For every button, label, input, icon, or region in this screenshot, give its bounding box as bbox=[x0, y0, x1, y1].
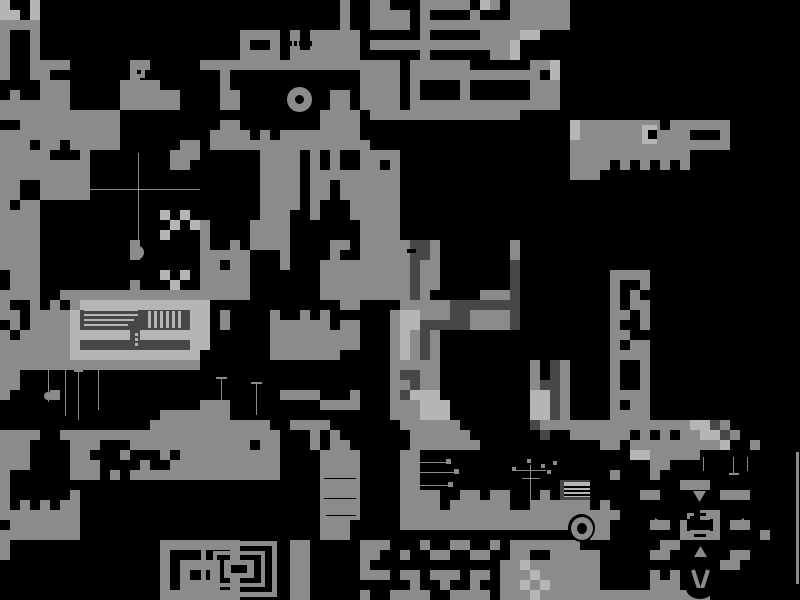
terrain-run bbox=[510, 50, 520, 60]
terrain-run bbox=[610, 300, 620, 310]
terrain-run bbox=[200, 60, 400, 70]
terrain-run bbox=[520, 30, 540, 40]
terrain-run bbox=[130, 440, 250, 450]
t-pole-2 bbox=[256, 382, 257, 415]
terrain-run bbox=[560, 400, 570, 410]
terrain-run bbox=[540, 430, 550, 440]
wall-arm-1 bbox=[420, 462, 448, 463]
terrain-run bbox=[0, 460, 30, 470]
terrain-run bbox=[400, 520, 570, 530]
terrain-run bbox=[350, 200, 400, 210]
terrain-run bbox=[570, 170, 600, 180]
terrain-run bbox=[450, 500, 510, 510]
terrain-run bbox=[610, 370, 620, 380]
terrain-run bbox=[550, 400, 560, 410]
terrain-run bbox=[520, 580, 530, 590]
antenna-node-1 bbox=[512, 467, 516, 471]
terrain-run bbox=[410, 340, 420, 350]
terrain-run bbox=[410, 80, 420, 90]
terrain-run bbox=[40, 90, 70, 100]
terrain-run bbox=[650, 550, 670, 560]
terrain-run bbox=[360, 540, 390, 550]
terrain-run bbox=[610, 350, 650, 360]
terrain-run bbox=[110, 470, 120, 480]
terrain-run bbox=[500, 580, 520, 590]
terrain-run bbox=[630, 340, 650, 350]
terrain-run bbox=[390, 330, 400, 340]
terrain-run bbox=[510, 290, 520, 300]
terrain-run bbox=[360, 230, 400, 240]
terrain-run bbox=[700, 430, 720, 440]
terrain-run bbox=[160, 210, 170, 220]
terrain-run bbox=[470, 10, 480, 20]
terrain-run bbox=[70, 450, 90, 460]
terrain-run bbox=[230, 260, 250, 270]
terrain-run bbox=[290, 50, 360, 60]
terrain-run bbox=[400, 480, 420, 490]
terrain-run bbox=[0, 540, 10, 550]
terrain-run bbox=[170, 160, 190, 170]
terrain-run bbox=[550, 370, 560, 380]
terrain-run bbox=[0, 40, 10, 50]
terrain-run bbox=[230, 240, 240, 250]
terrain-run bbox=[410, 430, 470, 440]
terrain-run bbox=[400, 300, 450, 310]
terrain-run bbox=[190, 340, 210, 350]
terrain-run bbox=[190, 310, 210, 320]
terrain-run bbox=[510, 40, 520, 50]
terrain-run bbox=[420, 30, 430, 40]
terrain-run bbox=[10, 320, 20, 330]
terrain-run bbox=[360, 240, 410, 250]
terrain-run bbox=[530, 400, 550, 410]
terrain-run bbox=[390, 160, 400, 170]
terrain-run bbox=[420, 330, 430, 340]
terrain-run bbox=[260, 190, 300, 200]
terrain-run bbox=[530, 360, 540, 370]
shaft-rung-5 bbox=[330, 562, 352, 563]
terrain-run bbox=[200, 220, 210, 230]
terrain-run bbox=[420, 260, 440, 270]
terrain-run bbox=[570, 160, 610, 170]
terrain-run bbox=[0, 390, 10, 400]
terrain-run bbox=[0, 480, 10, 490]
terrain-run bbox=[610, 320, 620, 330]
t-pole-1 bbox=[221, 377, 222, 415]
terrain-run bbox=[420, 310, 450, 320]
terrain-run bbox=[0, 300, 10, 310]
terrain-run bbox=[420, 350, 430, 360]
terrain-run bbox=[0, 160, 90, 170]
terrain-run bbox=[400, 570, 420, 580]
terrain-run bbox=[260, 210, 290, 220]
terrain-run bbox=[420, 400, 450, 410]
terrain-run bbox=[360, 220, 400, 230]
terrain-run bbox=[390, 400, 420, 410]
terrain-run bbox=[280, 260, 290, 270]
terrain-run bbox=[320, 110, 360, 120]
terrain-run bbox=[490, 0, 500, 10]
terrain-run bbox=[30, 50, 40, 60]
portal-ring bbox=[287, 87, 312, 112]
shaft-rung-3 bbox=[326, 515, 356, 516]
terrain-run bbox=[210, 130, 250, 140]
terrain-run bbox=[530, 90, 560, 100]
terrain-run bbox=[650, 580, 680, 590]
terrain-run bbox=[0, 510, 80, 520]
terrain-run bbox=[0, 310, 20, 320]
terrain-run bbox=[270, 320, 330, 330]
terrain-run bbox=[360, 250, 410, 260]
terrain-run bbox=[610, 380, 620, 390]
terrain-run bbox=[400, 450, 420, 460]
terrain-run bbox=[580, 130, 690, 140]
terrain-run bbox=[370, 10, 410, 20]
terrain-run bbox=[360, 570, 390, 580]
dash-1 bbox=[289, 41, 292, 46]
terrain-run bbox=[610, 390, 650, 400]
terrain-run bbox=[70, 320, 80, 330]
terrain-run bbox=[530, 390, 550, 400]
terrain-run bbox=[130, 280, 140, 290]
terrain-run bbox=[0, 10, 20, 20]
terrain-run bbox=[360, 560, 370, 570]
shaft-rung-6 bbox=[332, 582, 352, 583]
terrain-run bbox=[720, 490, 750, 500]
terrain-run bbox=[290, 570, 310, 580]
antenna-node-2 bbox=[527, 459, 531, 463]
terrain-run bbox=[360, 70, 400, 80]
terrain-run bbox=[270, 350, 340, 360]
terrain-run bbox=[200, 400, 230, 410]
terrain-run bbox=[510, 240, 520, 250]
terrain-run bbox=[760, 530, 770, 540]
terrain-run bbox=[330, 440, 350, 450]
terrain-run bbox=[390, 370, 400, 380]
terrain-run bbox=[170, 280, 180, 290]
terrain-run bbox=[450, 300, 520, 310]
terrain-run bbox=[510, 250, 520, 260]
terrain-run bbox=[730, 430, 740, 440]
terrain-run bbox=[530, 380, 540, 390]
terrain-run bbox=[290, 580, 310, 590]
terrain-run bbox=[420, 540, 430, 550]
terrain-run bbox=[390, 310, 400, 320]
terrain-run bbox=[540, 380, 560, 390]
terrain-run bbox=[610, 310, 630, 320]
terrain-run bbox=[510, 10, 570, 20]
compass-tri-down bbox=[693, 491, 706, 502]
terrain-run bbox=[400, 330, 410, 340]
terrain-run bbox=[310, 180, 330, 190]
terrain-run bbox=[510, 320, 520, 330]
terrain-run bbox=[260, 440, 280, 450]
terrain-run bbox=[0, 60, 10, 70]
terrain-run bbox=[410, 440, 480, 450]
terrain-run bbox=[70, 310, 80, 320]
terrain-run bbox=[250, 220, 290, 230]
terrain-run bbox=[180, 570, 190, 580]
game-region-map bbox=[0, 0, 800, 600]
terrain-run bbox=[510, 550, 530, 560]
terrain-run bbox=[450, 310, 470, 320]
terrain-run bbox=[470, 580, 480, 590]
terrain-run bbox=[420, 340, 430, 350]
terrain-run bbox=[640, 490, 660, 500]
terrain-run bbox=[620, 160, 630, 170]
terrain-run bbox=[30, 310, 70, 320]
terrain-run bbox=[0, 20, 40, 30]
terrain-run bbox=[0, 350, 70, 360]
terrain-run bbox=[0, 530, 80, 540]
terrain-run bbox=[400, 500, 440, 510]
wire-3 bbox=[747, 457, 748, 471]
terrain-run bbox=[210, 140, 370, 150]
terrain-run bbox=[410, 380, 420, 390]
terrain-run bbox=[390, 590, 430, 600]
terrain-run bbox=[0, 200, 10, 210]
dash-3 bbox=[299, 41, 302, 46]
terrain-run bbox=[220, 100, 240, 110]
terrain-run bbox=[270, 40, 280, 50]
terrain-run bbox=[270, 330, 360, 340]
terrain-run bbox=[400, 420, 460, 430]
terrain-run bbox=[0, 330, 10, 340]
terrain-run bbox=[610, 280, 620, 290]
terrain-run bbox=[270, 310, 280, 320]
terrain-run bbox=[410, 100, 560, 110]
compass-frame-cut-right bbox=[710, 519, 713, 531]
terrain-run bbox=[610, 330, 630, 340]
terrain-run bbox=[0, 260, 40, 270]
terrain-run bbox=[50, 300, 60, 310]
terrain-run bbox=[160, 550, 170, 560]
terrain-run bbox=[180, 270, 190, 280]
terrain-run bbox=[450, 540, 470, 550]
terrain-run bbox=[430, 550, 450, 560]
terrain-run bbox=[340, 190, 400, 200]
ship-slot-1 bbox=[148, 311, 151, 328]
ship-stripe-4 bbox=[84, 324, 128, 326]
terrain-run bbox=[0, 440, 30, 450]
terrain-run bbox=[650, 460, 670, 470]
antenna-node-4 bbox=[547, 470, 551, 474]
teardrop bbox=[133, 246, 144, 259]
cave-pole-2 bbox=[65, 368, 66, 416]
terrain-run bbox=[120, 450, 130, 460]
terrain-run bbox=[680, 480, 710, 490]
terrain-run bbox=[730, 550, 750, 560]
terrain-run bbox=[70, 460, 100, 470]
terrain-run bbox=[540, 580, 550, 590]
terrain-run bbox=[430, 340, 440, 350]
terrain-run bbox=[320, 120, 360, 130]
terrain-run bbox=[200, 240, 210, 250]
terrain-run bbox=[370, 110, 520, 120]
terrain-run bbox=[640, 320, 650, 330]
terrain-run bbox=[220, 80, 230, 90]
terrain-run bbox=[420, 50, 430, 60]
terrain-run bbox=[70, 330, 130, 340]
terrain-run bbox=[410, 350, 420, 360]
terrain-run bbox=[510, 280, 520, 290]
vee-left-arm bbox=[691, 569, 701, 588]
terrain-run bbox=[10, 280, 40, 290]
terrain-run bbox=[560, 360, 570, 370]
ship-stripe-1 bbox=[84, 309, 138, 311]
right-wall bbox=[796, 452, 799, 584]
terrain-run bbox=[400, 490, 440, 500]
terrain-run bbox=[420, 370, 440, 380]
terrain-run bbox=[530, 60, 550, 70]
terrain-run bbox=[370, 20, 410, 30]
terrain-run bbox=[280, 130, 360, 140]
ship-slot-4 bbox=[166, 311, 169, 328]
terrain-run bbox=[630, 290, 640, 300]
crate-stripe-3 bbox=[564, 494, 590, 496]
terrain-run bbox=[60, 430, 280, 440]
shaft-rung-4 bbox=[328, 545, 352, 546]
terrain-run bbox=[30, 320, 70, 330]
terrain-run bbox=[470, 550, 490, 560]
terrain-run bbox=[560, 380, 570, 390]
terrain-run bbox=[0, 250, 40, 260]
terrain-run bbox=[320, 310, 330, 320]
terrain-run bbox=[460, 80, 470, 90]
shaft-rung-1 bbox=[324, 478, 356, 479]
wall-arm-3 bbox=[420, 485, 450, 486]
terrain-run bbox=[70, 140, 120, 150]
terrain-run bbox=[630, 440, 720, 450]
terrain-run bbox=[630, 300, 650, 310]
terrain-run bbox=[390, 380, 410, 390]
cave-pole-3-top bbox=[74, 370, 83, 372]
terrain-run bbox=[400, 470, 420, 480]
terrain-run bbox=[0, 70, 10, 80]
terrain-run bbox=[0, 470, 10, 480]
cave-pole-4-top bbox=[94, 368, 103, 370]
ship-slot-2 bbox=[154, 311, 157, 328]
terrain-run bbox=[310, 200, 320, 210]
terrain-run bbox=[400, 340, 410, 350]
terrain-run bbox=[510, 0, 570, 10]
terrain-run bbox=[0, 170, 90, 180]
terrain-run bbox=[360, 90, 400, 100]
terrain-run bbox=[460, 90, 470, 100]
terrain-run bbox=[480, 0, 490, 10]
terrain-run bbox=[430, 240, 440, 250]
terrain-run bbox=[520, 560, 530, 570]
dash-4 bbox=[304, 41, 307, 46]
terrain-run bbox=[570, 130, 580, 140]
terrain-run bbox=[250, 240, 290, 250]
terrain-run bbox=[0, 0, 10, 10]
terrain-run bbox=[260, 150, 300, 160]
terrain-run bbox=[340, 20, 350, 30]
terrain-run bbox=[240, 40, 250, 50]
terrain-run bbox=[470, 570, 490, 580]
tunnel-ring bbox=[571, 517, 593, 540]
terrain-run bbox=[180, 140, 200, 150]
terrain-run bbox=[40, 190, 90, 200]
terrain-run bbox=[250, 230, 290, 240]
terrain-run bbox=[220, 120, 240, 130]
terrain-run bbox=[570, 120, 580, 130]
terrain-run bbox=[0, 490, 10, 500]
terrain-run bbox=[600, 500, 610, 510]
terrain-run bbox=[640, 430, 650, 440]
terrain-run bbox=[550, 410, 560, 420]
terrain-run bbox=[500, 570, 530, 580]
terrain-run bbox=[550, 70, 560, 80]
compass-frame-cut-bottom bbox=[694, 534, 706, 537]
pillar-dot-2 bbox=[135, 338, 138, 341]
terrain-run bbox=[670, 570, 680, 580]
terrain-run bbox=[550, 60, 560, 70]
terrain-run bbox=[540, 490, 550, 500]
wall-arm-2 bbox=[420, 472, 456, 473]
terrain-run bbox=[560, 390, 570, 400]
terrain-run bbox=[470, 320, 510, 330]
terrain-run bbox=[540, 590, 710, 600]
terrain-run bbox=[0, 210, 40, 220]
terrain-run bbox=[500, 560, 520, 570]
terrain-run bbox=[0, 50, 10, 60]
antenna-cross-1 bbox=[516, 470, 546, 471]
terrain-run bbox=[260, 200, 300, 210]
terrain-run bbox=[0, 190, 20, 200]
terrain-run bbox=[370, 40, 510, 50]
terrain-run bbox=[530, 590, 540, 600]
terrain-run bbox=[530, 410, 550, 420]
terrain-run bbox=[530, 580, 540, 590]
terrain-run bbox=[510, 540, 580, 550]
terrain-run bbox=[30, 300, 40, 310]
terrain-run bbox=[80, 150, 90, 160]
terrain-run bbox=[640, 310, 650, 320]
terrain-run bbox=[0, 430, 40, 440]
terrain-run bbox=[610, 270, 650, 280]
nested-core-hole bbox=[231, 565, 247, 573]
terrain-run bbox=[190, 320, 210, 330]
hanging-line bbox=[90, 189, 200, 190]
terrain-run bbox=[400, 350, 410, 360]
terrain-run bbox=[70, 440, 100, 450]
terrain-run bbox=[120, 80, 160, 90]
terrain-run bbox=[0, 220, 40, 230]
terrain-run bbox=[320, 520, 350, 530]
terrain-run bbox=[430, 570, 460, 580]
teardrop-stem bbox=[138, 153, 139, 247]
terrain-run bbox=[410, 260, 420, 270]
terrain-run bbox=[310, 150, 320, 160]
terrain-run bbox=[420, 10, 430, 20]
terrain-run bbox=[420, 320, 470, 330]
terrain-run bbox=[310, 40, 360, 50]
ship-slot-6 bbox=[178, 311, 181, 328]
terrain-run bbox=[660, 540, 680, 550]
terrain-run bbox=[10, 270, 40, 280]
terrain-run bbox=[160, 450, 170, 460]
terrain-run bbox=[260, 180, 300, 190]
terrain-run bbox=[70, 470, 100, 480]
ship-stripe-2 bbox=[84, 314, 138, 316]
terrain-run bbox=[20, 200, 40, 210]
terrain-run bbox=[360, 80, 400, 90]
terrain-run bbox=[610, 470, 620, 480]
terrain-run bbox=[530, 80, 560, 90]
terrain-run bbox=[220, 320, 230, 330]
